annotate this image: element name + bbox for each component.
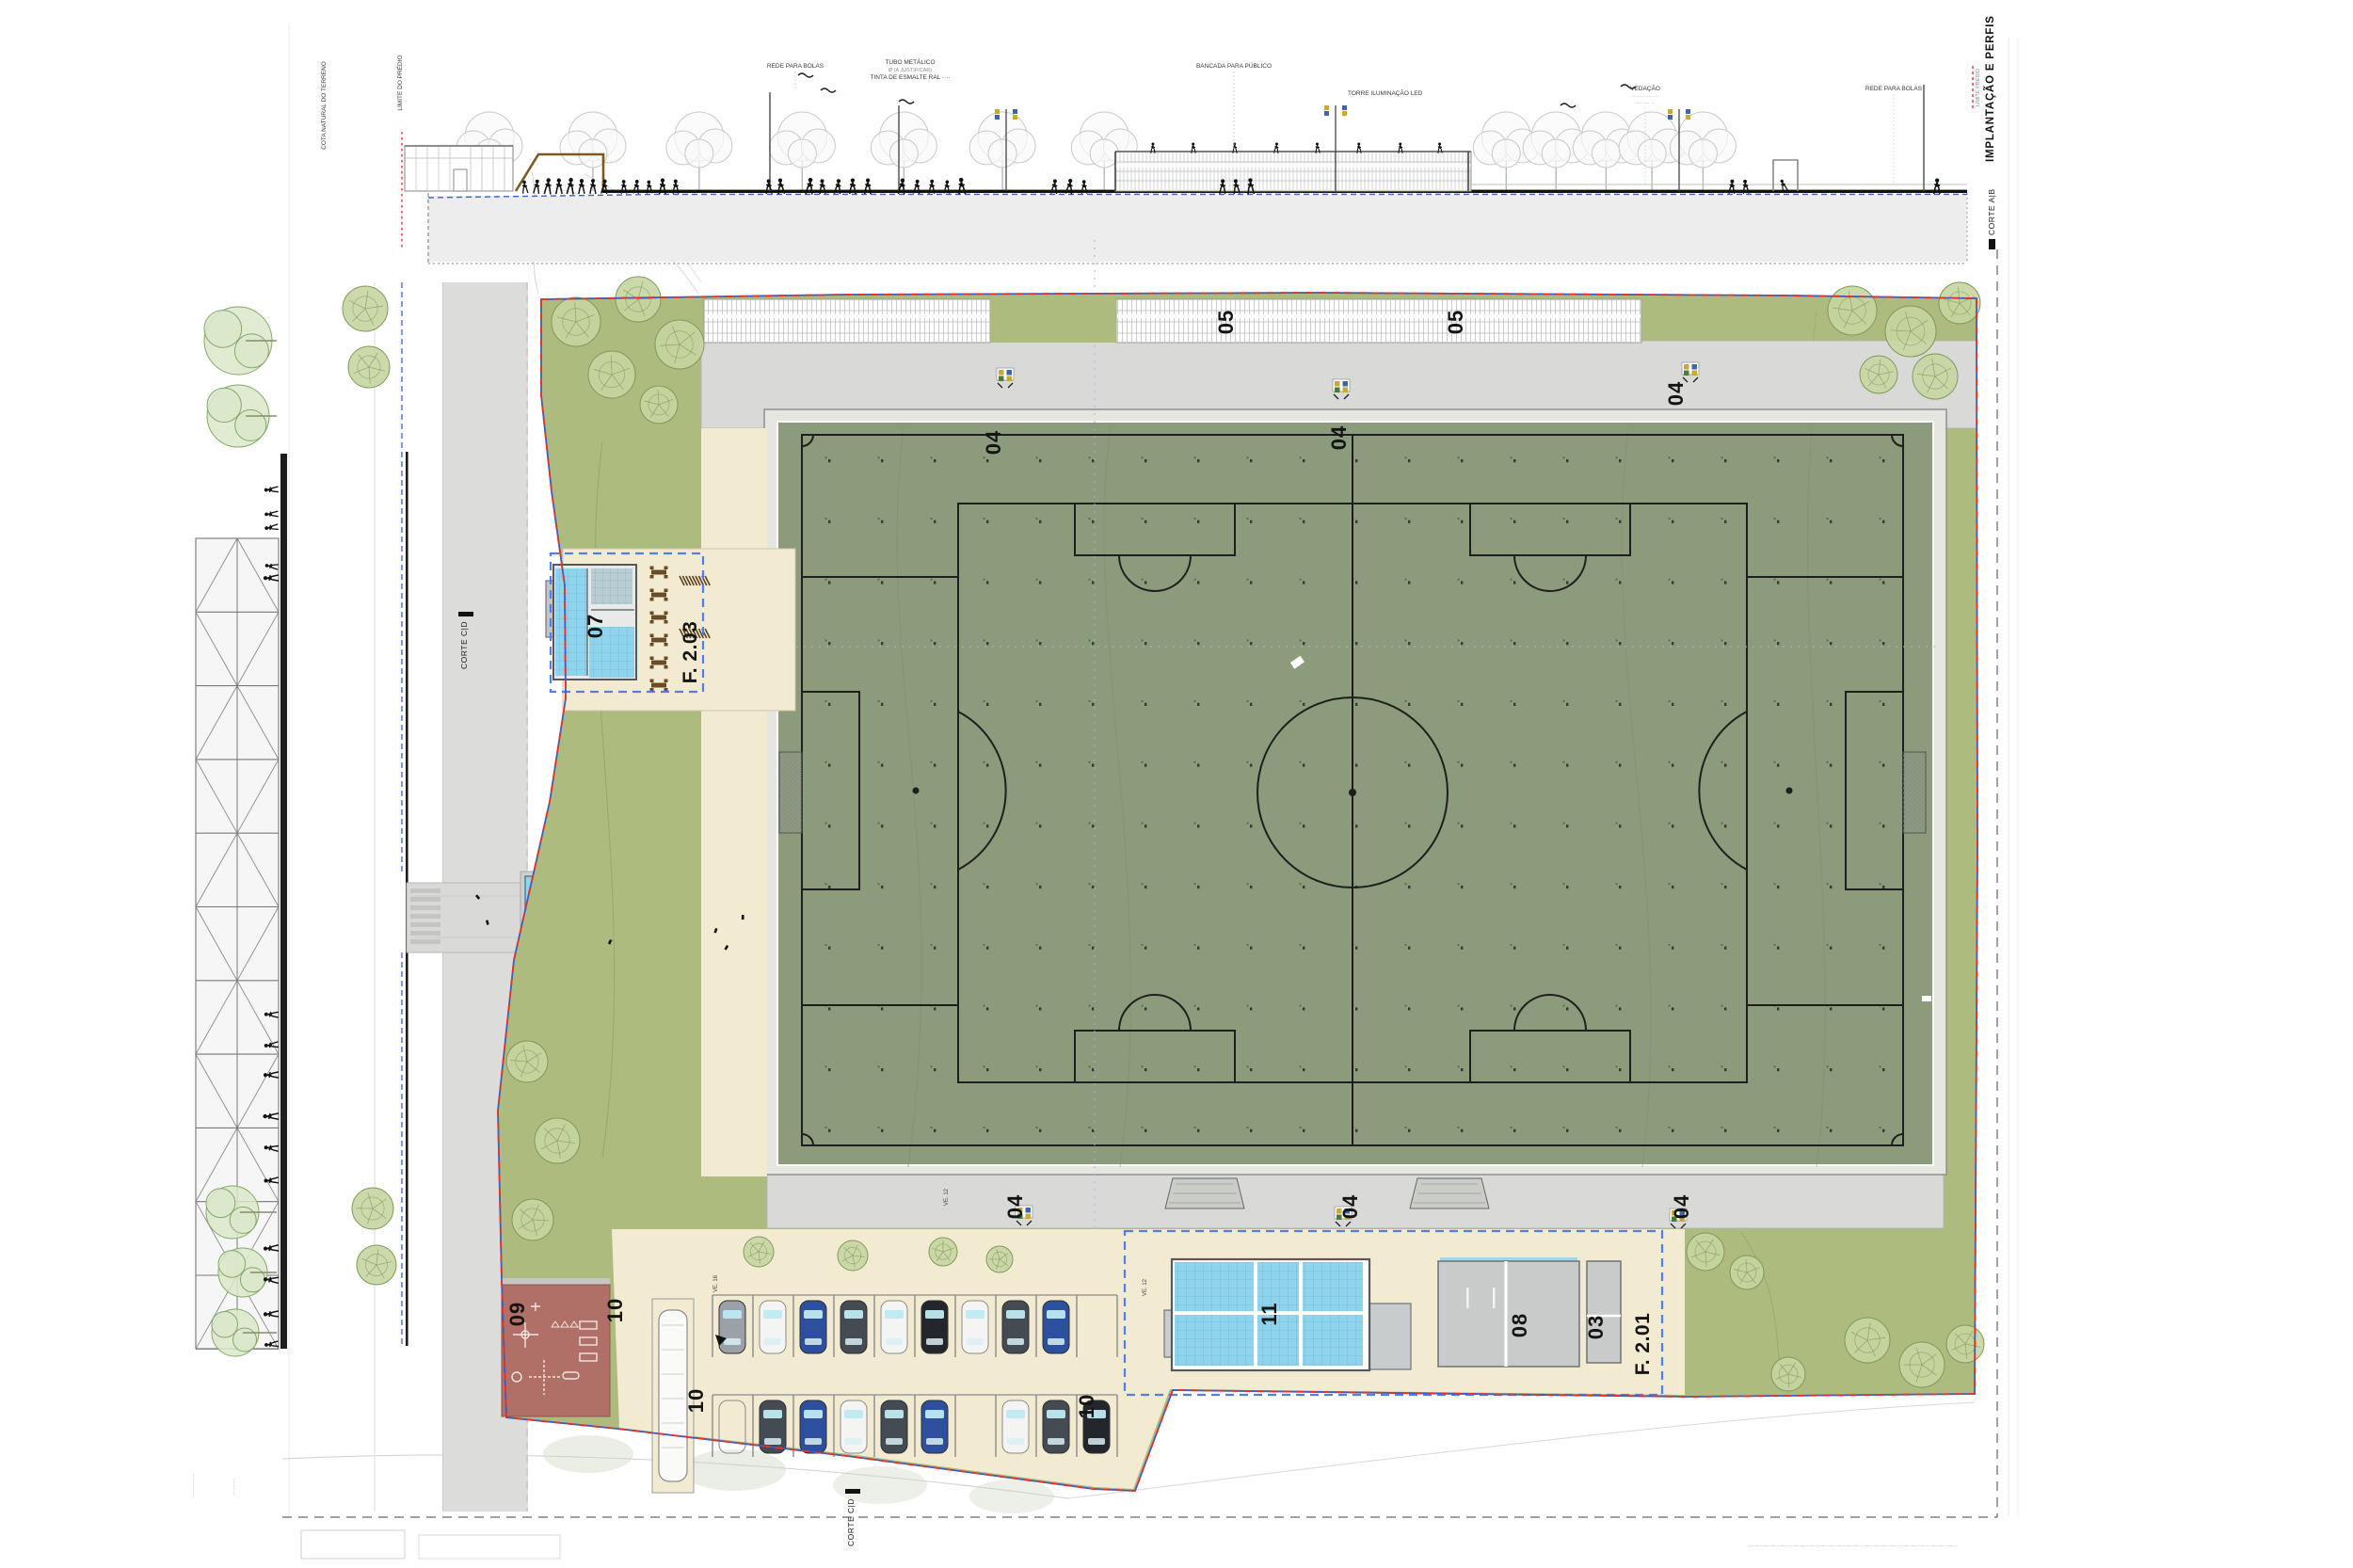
label-tubo-2: Ø (A JUSTIFICAR) xyxy=(888,68,932,73)
label-08: 08 xyxy=(1508,1313,1531,1337)
label-tubo-1: TUBO METÁLICO xyxy=(885,57,935,66)
street-trees xyxy=(343,286,396,1285)
label-05-1: 05 xyxy=(1214,310,1238,334)
label-05-2: 05 xyxy=(1444,310,1467,334)
label-ve12-b: VE. 12 xyxy=(944,1188,950,1206)
corner-note-b: ·········· xyxy=(232,1479,237,1496)
site-plan: 04 04 04 04 04 04 05 05 07 F. 2.03 09 10… xyxy=(458,240,1984,1546)
label-04-top-2: 04 xyxy=(1327,425,1351,450)
label-bancada: BANCADA PARA PÚBLICO xyxy=(1196,61,1272,70)
west-walkway xyxy=(701,428,767,1176)
label-04-bottom-2: 04 xyxy=(1338,1194,1362,1219)
legend-limite: LIMITE PRÉDIO xyxy=(1975,68,1981,106)
label-tubo-3: TINTA DE ESMALTE RAL ···· xyxy=(870,74,950,81)
corte-ab-marker xyxy=(1989,239,1995,249)
elevation-building xyxy=(405,146,513,191)
label-09: 09 xyxy=(505,1302,529,1326)
label-limite-predio: LIMITE DO PRÉDIO xyxy=(395,55,404,110)
label-ve12-a: VE. 12 xyxy=(1143,1278,1148,1296)
bleacher-gap-green xyxy=(990,296,1116,343)
drawing-sheet: ···–···–··–····–···–··–·····–···–··–···–… xyxy=(0,0,2353,1568)
bleachers-plan xyxy=(704,299,1641,343)
subground-fill xyxy=(428,196,1967,262)
corte-cd-bottom: CORTE C|D xyxy=(846,1498,856,1546)
label-torre: TORRE ILUMINAÇÃO LED xyxy=(1348,88,1423,97)
elevation-trees xyxy=(456,112,1736,191)
label-f201: F. 2.01 xyxy=(1632,1313,1654,1376)
label-11: 11 xyxy=(1257,1302,1281,1325)
label-f203: F. 2.03 xyxy=(680,621,701,684)
label-04-top-1: 04 xyxy=(982,430,1005,455)
building-03 xyxy=(1587,1261,1621,1363)
building-08 xyxy=(1438,1257,1579,1367)
label-10-3: 10 xyxy=(1075,1394,1098,1418)
label-04-bottom-3: 04 xyxy=(1670,1194,1693,1219)
label-07: 07 xyxy=(584,614,607,638)
corner-note-a: ·············· xyxy=(191,1473,197,1497)
label-04-top-3: 04 xyxy=(1664,381,1688,406)
playground-09 xyxy=(502,1278,610,1416)
label-vedacao-sub1: ·· ····· ···· ·· xyxy=(1632,94,1659,100)
corte-ab-label: CORTE A|B xyxy=(1987,188,1996,235)
label-ve16: VE. 16 xyxy=(713,1274,719,1292)
label-rede-bolas-1: REDE PARA BOLAS xyxy=(767,63,824,70)
label-vedacao-sub2: ··· ···· ·· xyxy=(1636,101,1655,106)
top-elevation-section: REDE PARA BOLAS TUBO METÁLICO Ø (A JUSTI… xyxy=(321,55,1967,264)
label-10-2: 10 xyxy=(684,1388,708,1413)
label-03: 03 xyxy=(1584,1315,1608,1339)
corte-cd-left: CORTE C|D xyxy=(459,621,469,669)
title-block: LIMITE PRÉDIO IMPLANTAÇÃO E PERFIS CORTE… xyxy=(1973,15,1996,249)
sheet-title: IMPLANTAÇÃO E PERFIS xyxy=(1984,15,1996,162)
label-rede-bolas-2: REDE PARA BOLAS xyxy=(1865,86,1923,92)
label-vedacao: VEDAÇÃO xyxy=(1630,84,1660,92)
site-plan-drawing: ···–···–··–····–···–··–·····–···–··–···–… xyxy=(0,0,2353,1568)
label-10-1: 10 xyxy=(603,1298,627,1322)
label-cota-natural: COTA NATURAL DO TERRENO xyxy=(321,61,328,150)
fine-print: ···–···–··–····–···–··–·····–···–··–···–… xyxy=(1747,1543,1958,1548)
label-04-bottom-1: 04 xyxy=(1003,1194,1027,1219)
